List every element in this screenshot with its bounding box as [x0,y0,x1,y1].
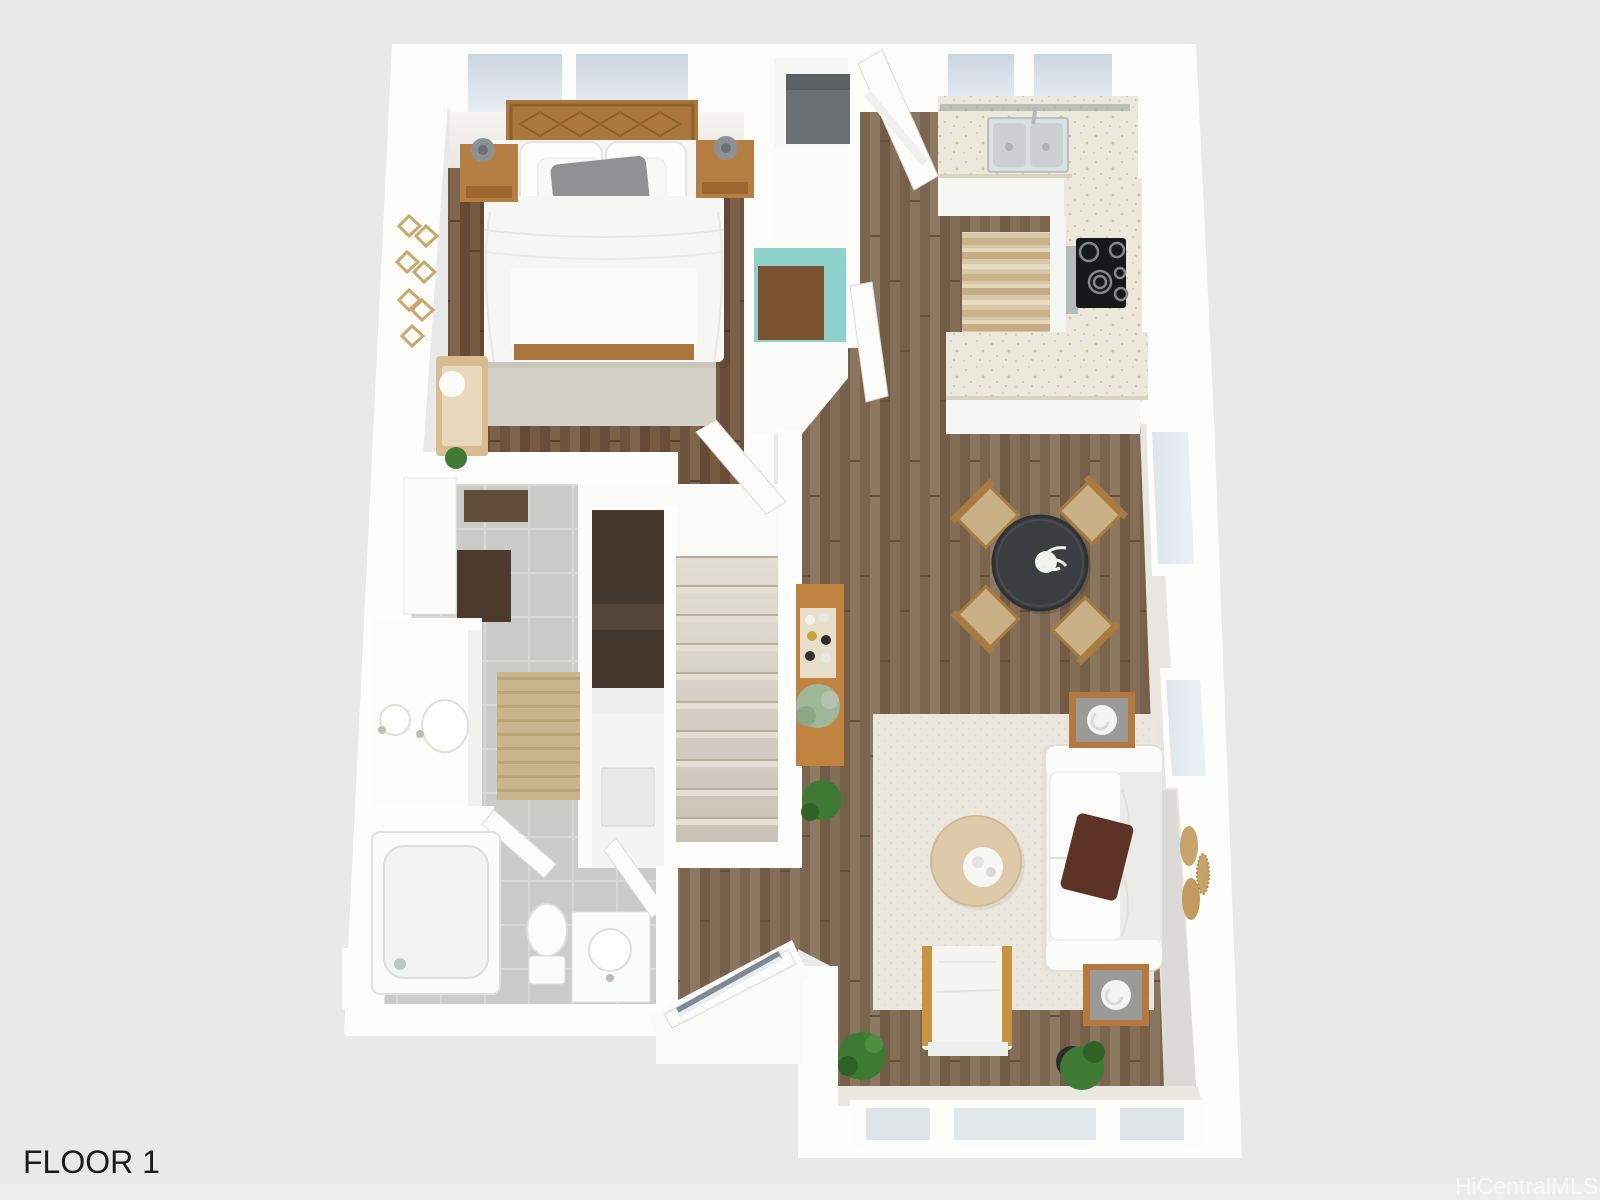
svg-text:HiCentralMLS: HiCentralMLS [1455,1173,1598,1199]
svg-text:FLOOR 1: FLOOR 1 [23,1144,160,1180]
